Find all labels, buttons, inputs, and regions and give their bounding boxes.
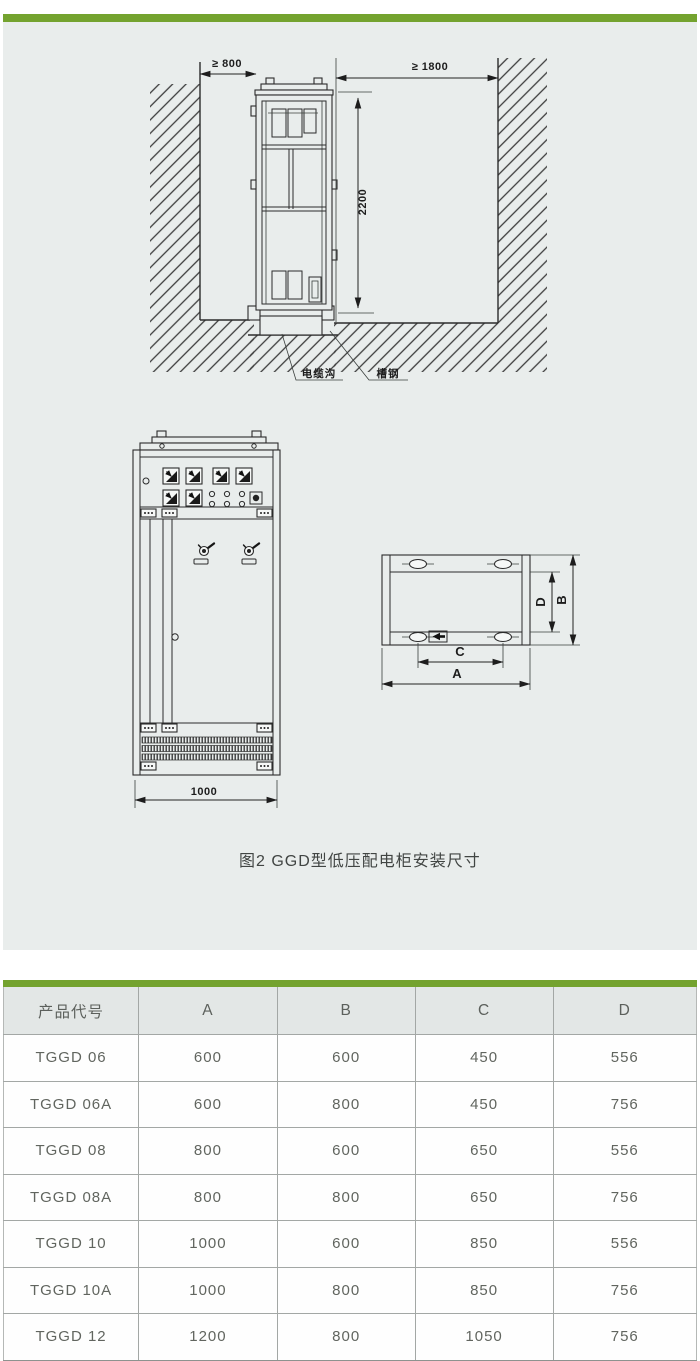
dim-b-cell: 600 [277, 1128, 415, 1175]
dim-c-cell: 450 [415, 1081, 553, 1128]
dim-c-cell: 650 [415, 1174, 553, 1221]
dim-c-cell: 850 [415, 1221, 553, 1268]
col-header-a: A [139, 987, 278, 1035]
dim-b-cell: 800 [277, 1081, 415, 1128]
dim-c-label: C [455, 644, 465, 659]
trench-ground-hatch [250, 335, 336, 372]
right-clearance-label: ≥ 1800 [412, 61, 449, 73]
dimension-table-section: 产品代号 A B C D TGGD 06 600 600 450 556 TGG… [3, 980, 697, 1361]
cabinet-height-label: 2200 [357, 189, 369, 215]
col-header-d: D [553, 987, 696, 1035]
dim-a-cell: 600 [139, 1035, 278, 1082]
dim-b-cell: 600 [277, 1035, 415, 1082]
dim-d-cell: 756 [553, 1314, 696, 1361]
cable-trench-label: 电缆沟 [302, 367, 337, 380]
dim-d-cell: 756 [553, 1081, 696, 1128]
cabinet-width-label: 1000 [191, 786, 217, 798]
dim-b-cell: 600 [277, 1221, 415, 1268]
dim-a-cell: 800 [139, 1128, 278, 1175]
col-header-c: C [415, 987, 553, 1035]
ground-right-hatch [334, 323, 498, 372]
figure-caption: 图2 GGD型低压配电柜安装尺寸 [239, 852, 481, 870]
dim-d-cell: 756 [553, 1267, 696, 1314]
dim-c-cell: 650 [415, 1128, 553, 1175]
top-view-drawing: D B C A [382, 555, 580, 690]
dim-b-cell: 800 [277, 1267, 415, 1314]
dim-b-label: B [554, 595, 569, 604]
table-header-row: 产品代号 A B C D [4, 987, 697, 1035]
table-row: TGGD 06A 600 800 450 756 [4, 1081, 697, 1128]
installation-diagram: ≥ 800 ≥ 1800 2200 电缆沟 槽钢 [3, 22, 697, 950]
table-row: TGGD 12 1200 800 1050 756 [4, 1314, 697, 1361]
model-cell: TGGD 10A [4, 1267, 139, 1314]
dim-c-cell: 850 [415, 1267, 553, 1314]
model-cell: TGGD 10 [4, 1221, 139, 1268]
dim-d-label: D [533, 597, 548, 606]
channel-steel-label: 槽钢 [377, 367, 400, 380]
model-cell: TGGD 08A [4, 1174, 139, 1221]
dim-a-cell: 1000 [139, 1221, 278, 1268]
dim-a-cell: 1000 [139, 1267, 278, 1314]
table-accent-bar [3, 980, 697, 987]
figure-panel: ≥ 800 ≥ 1800 2200 电缆沟 槽钢 [3, 14, 697, 950]
dim-c-cell: 450 [415, 1035, 553, 1082]
table-row: TGGD 08A 800 800 650 756 [4, 1174, 697, 1221]
dim-b-cell: 800 [277, 1174, 415, 1221]
right-wall-hatch [498, 58, 547, 372]
dimension-table: 产品代号 A B C D TGGD 06 600 600 450 556 TGG… [3, 987, 697, 1361]
dim-b-cell: 800 [277, 1314, 415, 1361]
cabinet-side-view [251, 78, 337, 310]
model-cell: TGGD 08 [4, 1128, 139, 1175]
left-wall-hatch [150, 84, 200, 320]
col-header-b: B [277, 987, 415, 1035]
left-clearance-label: ≥ 800 [212, 58, 242, 70]
front-view-drawing: 1000 [133, 431, 280, 808]
model-cell: TGGD 06 [4, 1035, 139, 1082]
side-view-drawing: ≥ 800 ≥ 1800 2200 电缆沟 槽钢 [150, 58, 547, 380]
dim-c-cell: 1050 [415, 1314, 553, 1361]
ground-left-hatch [150, 320, 254, 372]
table-row: TGGD 06 600 600 450 556 [4, 1035, 697, 1082]
dim-a-label: A [452, 666, 462, 681]
cabinet-base-block [260, 316, 322, 335]
lifting-bar [261, 84, 327, 90]
table-row: TGGD 10 1000 600 850 556 [4, 1221, 697, 1268]
document-page: { "page": { "accent_color": "#74a32f", "… [0, 0, 700, 1351]
dim-a-cell: 1200 [139, 1314, 278, 1361]
model-cell: TGGD 06A [4, 1081, 139, 1128]
dim-d-cell: 556 [553, 1221, 696, 1268]
dim-a-cell: 800 [139, 1174, 278, 1221]
lifting-bar-front [152, 437, 266, 443]
model-cell: TGGD 12 [4, 1314, 139, 1361]
table-row: TGGD 10A 1000 800 850 756 [4, 1267, 697, 1314]
vent-grille [142, 737, 272, 760]
dim-d-cell: 556 [553, 1128, 696, 1175]
col-header-model: 产品代号 [4, 987, 139, 1035]
dim-a-cell: 600 [139, 1081, 278, 1128]
table-row: TGGD 08 800 600 650 556 [4, 1128, 697, 1175]
dim-d-cell: 556 [553, 1035, 696, 1082]
dim-d-cell: 756 [553, 1174, 696, 1221]
